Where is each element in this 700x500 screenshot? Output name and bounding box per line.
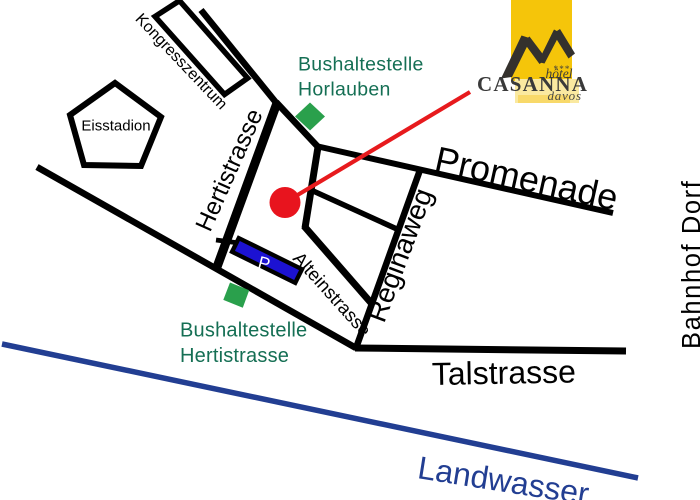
svg-text:Bushaltestelle: Bushaltestelle [298,54,424,76]
svg-text:Horlauben: Horlauben [298,79,391,101]
svg-text:davos: davos [548,88,582,103]
svg-text:Bahnhof Dorf: Bahnhof Dorf [678,180,700,349]
svg-text:Hertistrasse: Hertistrasse [180,345,289,367]
svg-text:Bushaltestelle: Bushaltestelle [180,320,307,342]
svg-text:Talstrasse: Talstrasse [431,353,576,392]
svg-text:Eisstadion: Eisstadion [81,118,150,135]
